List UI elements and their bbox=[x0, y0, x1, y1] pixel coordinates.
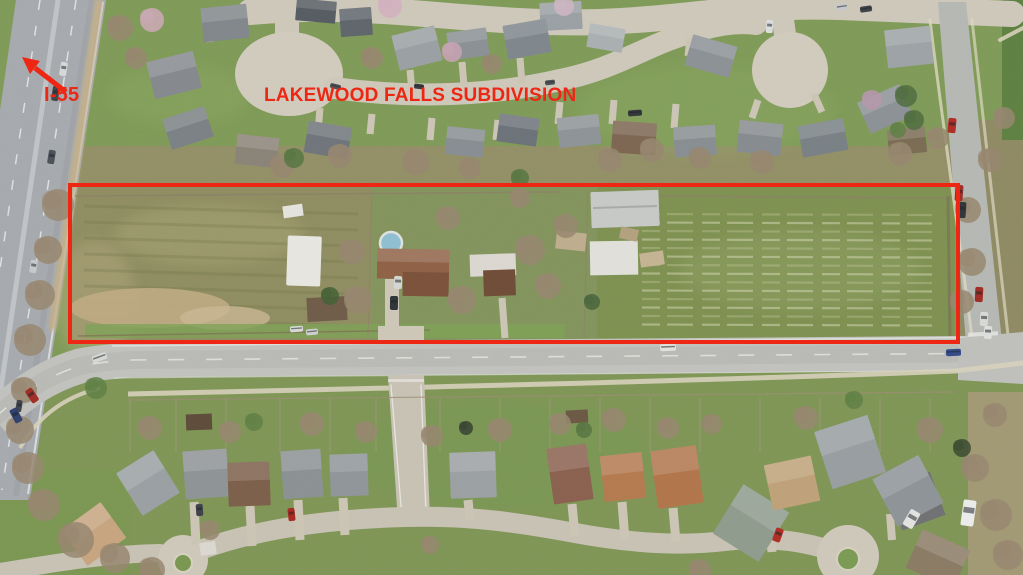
subdivision-label: LAKEWOOD FALLS SUBDIVISION bbox=[264, 85, 576, 107]
aerial-photo: I-55 LAKEWOOD FALLS SUBDIVISION bbox=[0, 0, 1023, 575]
highway-label: I-55 bbox=[44, 84, 79, 107]
